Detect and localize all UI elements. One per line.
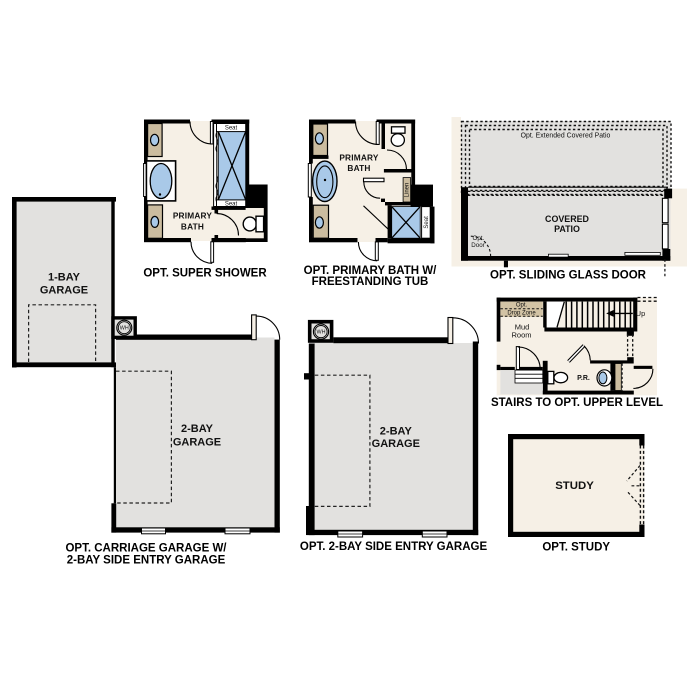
svg-text:Opt. Extended Covered Patio: Opt. Extended Covered Patio (521, 133, 611, 140)
svg-text:STAIRS TO OPT. UPPER LEVEL: STAIRS TO OPT. UPPER LEVEL (491, 397, 663, 409)
svg-text:Linen: Linen (405, 183, 411, 198)
svg-text:Drop Zone: Drop Zone (507, 311, 536, 317)
svg-text:Seat: Seat (424, 216, 430, 229)
svg-text:FREESTANDING TUB: FREESTANDING TUB (312, 276, 429, 288)
svg-text:PRIMARY: PRIMARY (173, 211, 213, 221)
svg-text:WH: WH (120, 326, 129, 332)
svg-text:STUDY: STUDY (555, 480, 594, 492)
svg-text:OPT. PRIMARY BATH W/: OPT. PRIMARY BATH W/ (304, 265, 437, 277)
svg-text:BATH: BATH (347, 163, 370, 173)
svg-text:2-BAY: 2-BAY (380, 426, 413, 438)
svg-text:OPT. 2-BAY SIDE ENTRY GARAGE: OPT. 2-BAY SIDE ENTRY GARAGE (300, 541, 488, 553)
svg-text:OPT. SLIDING GLASS DOOR: OPT. SLIDING GLASS DOOR (490, 270, 647, 282)
svg-text:PATIO: PATIO (554, 224, 580, 234)
svg-text:GARAGE: GARAGE (40, 285, 88, 297)
svg-text:Seat: Seat (225, 126, 238, 132)
svg-text:WH: WH (317, 330, 326, 336)
svg-text:GARAGE: GARAGE (372, 438, 420, 450)
svg-text:Seat: Seat (225, 201, 238, 207)
svg-text:Door: Door (471, 242, 484, 249)
svg-text:Opt.: Opt. (473, 235, 485, 242)
svg-text:OPT. STUDY: OPT. STUDY (542, 541, 610, 553)
svg-text:Room: Room (511, 330, 531, 339)
svg-text:2-BAY SIDE ENTRY GARAGE: 2-BAY SIDE ENTRY GARAGE (67, 554, 226, 566)
svg-text:Up: Up (636, 309, 645, 318)
svg-text:BATH: BATH (181, 221, 204, 231)
svg-text:Opt.: Opt. (516, 303, 528, 309)
svg-text:P.R.: P.R. (577, 375, 590, 382)
svg-text:PRIMARY: PRIMARY (339, 153, 379, 163)
svg-text:1-BAY: 1-BAY (48, 271, 81, 283)
svg-text:GARAGE: GARAGE (173, 437, 221, 449)
svg-text:2-BAY: 2-BAY (181, 423, 214, 435)
svg-text:COVERED: COVERED (545, 214, 589, 224)
svg-text:OPT. SUPER SHOWER: OPT. SUPER SHOWER (143, 267, 267, 279)
svg-text:OPT. CARRIAGE GARAGE W/: OPT. CARRIAGE GARAGE W/ (65, 542, 227, 554)
